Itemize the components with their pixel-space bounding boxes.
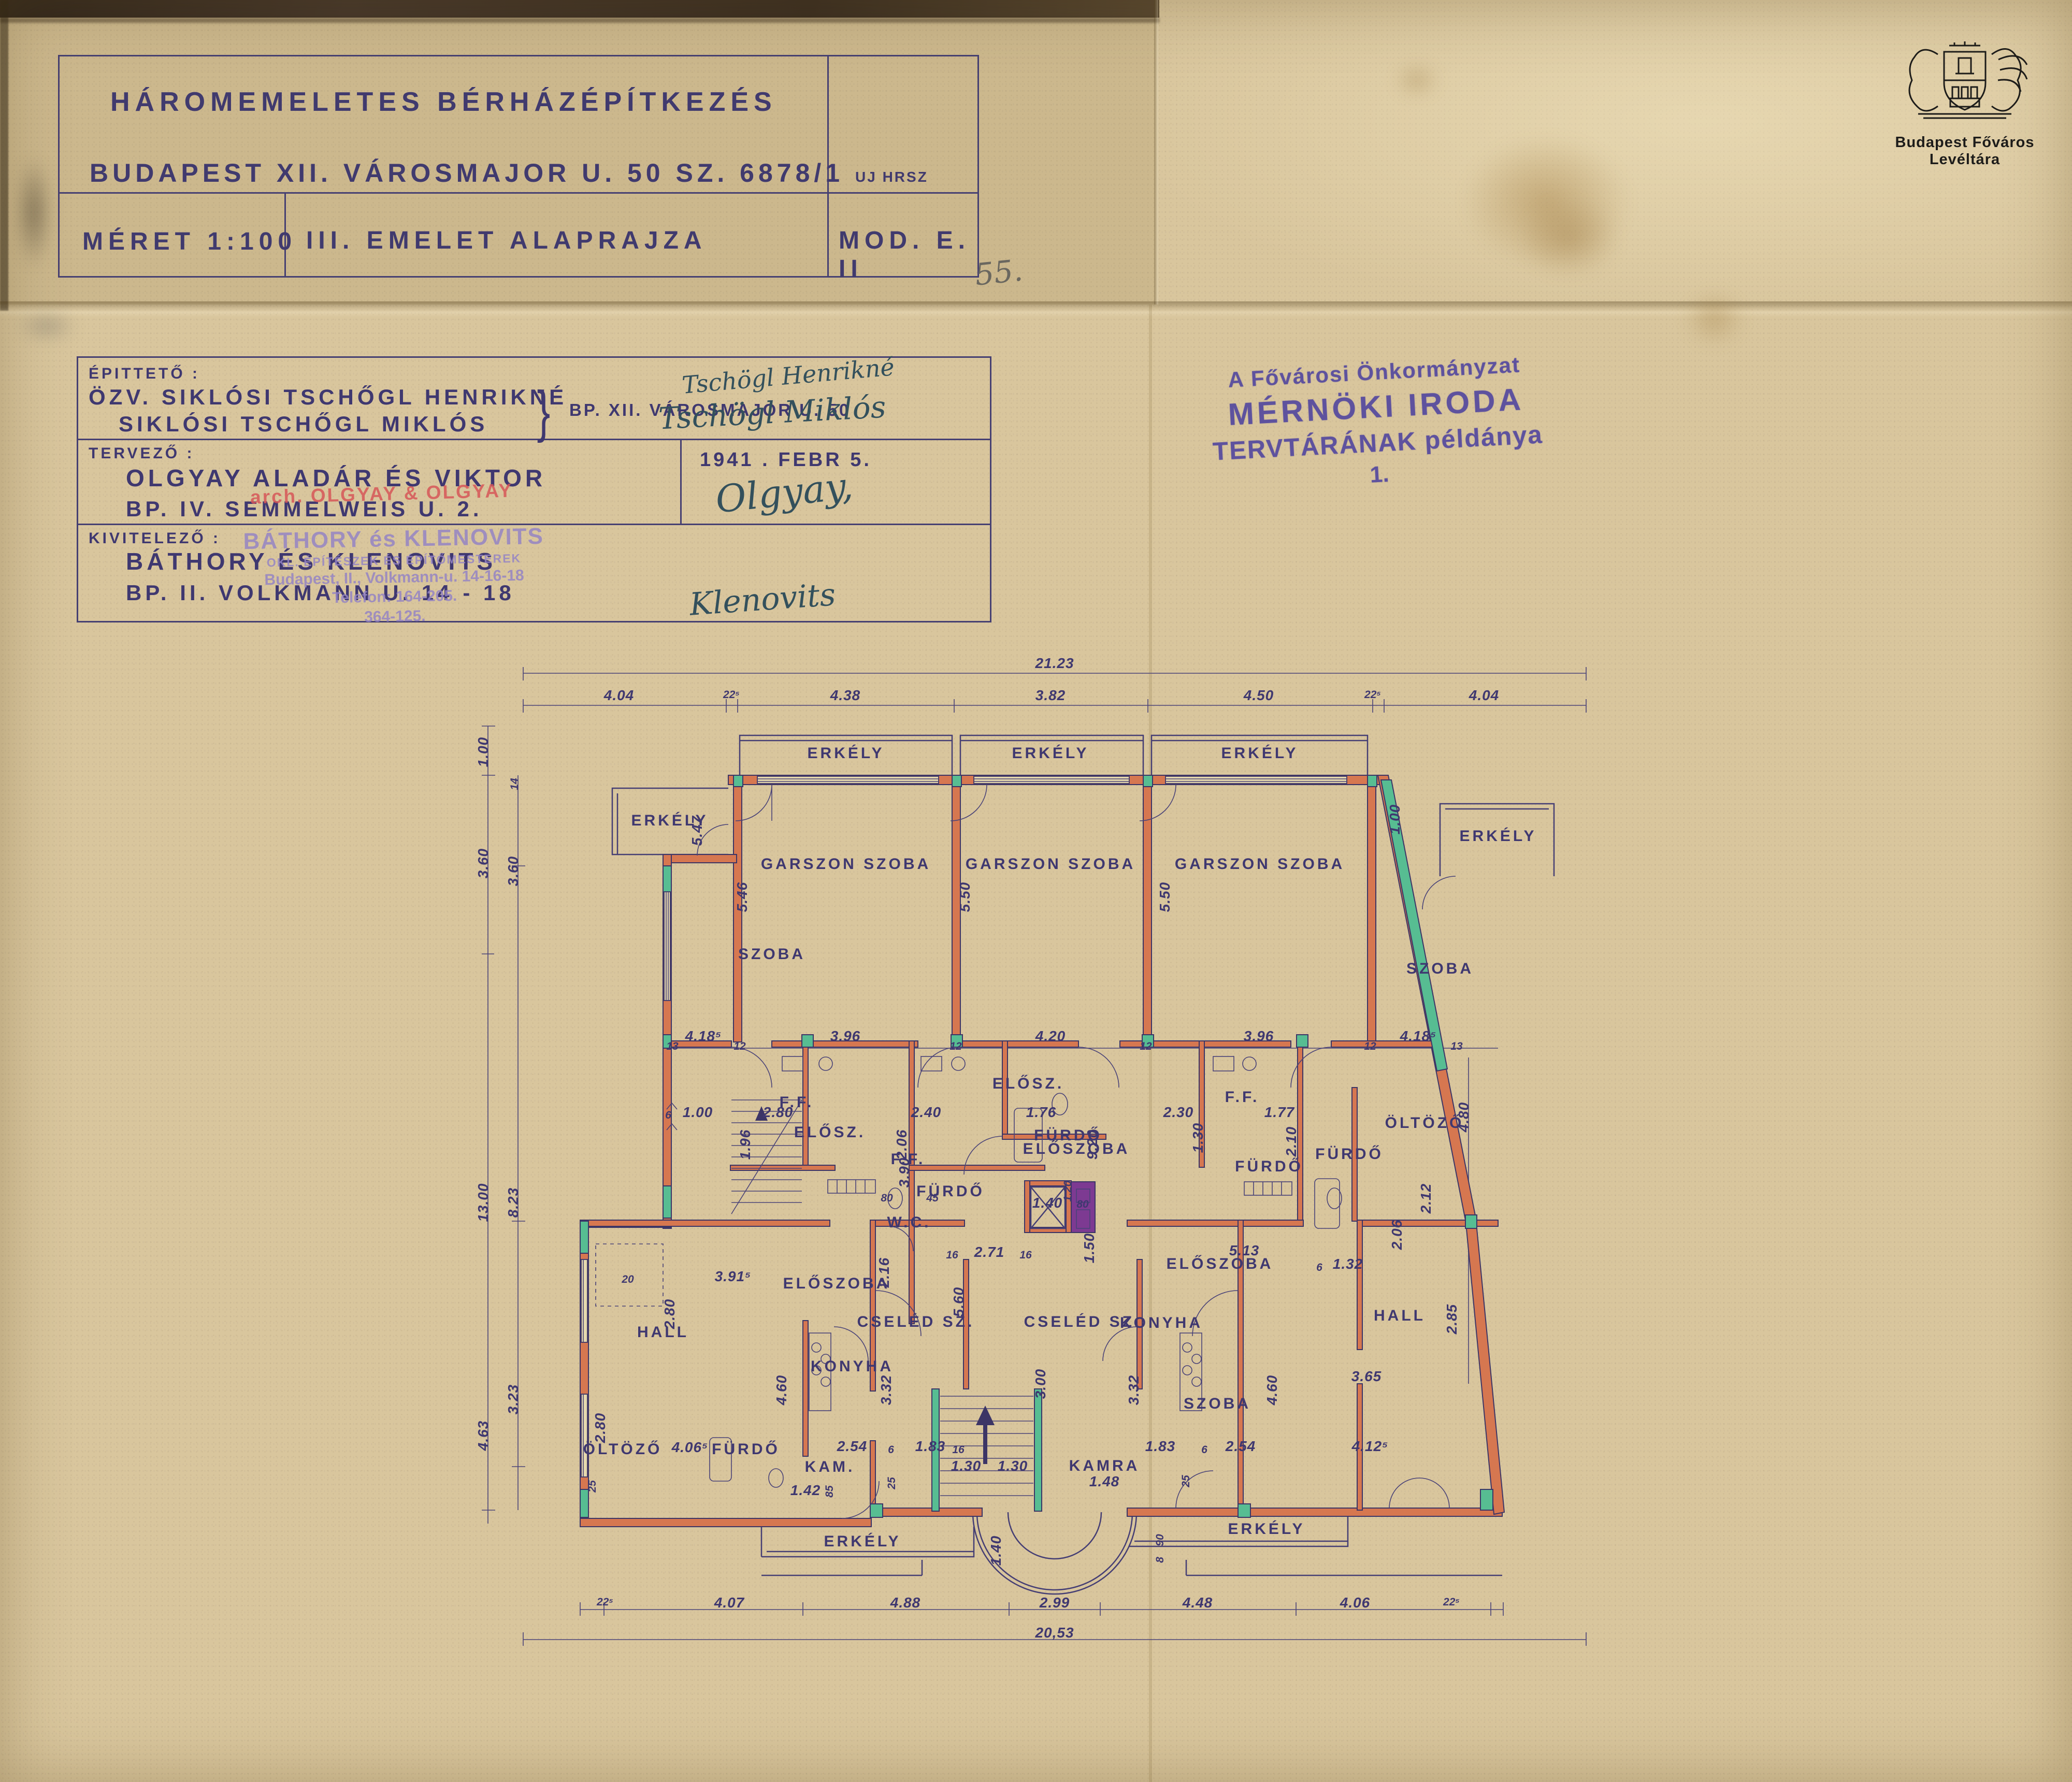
dimension-label: 4.06 xyxy=(1340,1595,1371,1611)
dimension-label: 1.30 xyxy=(998,1458,1028,1474)
dimension-label: 4.60 xyxy=(1264,1375,1280,1406)
dimension-label: 2.12 xyxy=(1418,1183,1434,1214)
archive-office-stamp: A Fővárosi Önkormányzat MÉRNÖKI IRODA TE… xyxy=(1167,347,1587,500)
dimension-label: 4.50 xyxy=(1243,687,1274,703)
pencil-number-note: 55. xyxy=(973,252,1025,292)
dimension-label: 1.00 xyxy=(1387,804,1403,835)
room-label: FÜRDŐ xyxy=(916,1182,985,1200)
dimension-label: 16 xyxy=(946,1249,958,1261)
dimension-label: 25 xyxy=(1180,1475,1192,1488)
paper-torn-top-shadow xyxy=(0,18,1159,23)
dimension-label: 4.63 xyxy=(475,1421,491,1452)
dimension-label: 20,53 xyxy=(1034,1625,1074,1641)
paper-left-edge xyxy=(0,0,8,311)
dimension-label: 2.80 xyxy=(592,1413,608,1444)
dimension-label: 80 xyxy=(1076,1198,1089,1210)
room-label: SZOBA xyxy=(1184,1395,1251,1412)
dimension-label: 8 xyxy=(1154,1557,1166,1563)
dimension-label: 2.54 xyxy=(1225,1438,1256,1454)
paper-fold-horizontal xyxy=(0,301,2072,317)
dimension-label: 3.23 xyxy=(505,1384,521,1415)
dimension-label: 1.76 xyxy=(1026,1104,1057,1120)
dimension-label: 6 xyxy=(1201,1444,1207,1456)
dimension-label: 5.60 xyxy=(951,1287,967,1317)
room-label: ERKÉLY xyxy=(1012,744,1089,762)
dimension-label: 90 xyxy=(1154,1534,1166,1546)
dimension-label: 1.32 xyxy=(1333,1256,1363,1272)
room-label: FÜRDŐ xyxy=(1315,1145,1384,1163)
project-address-text: BUDAPEST XII. VÁROSMAJOR U. 50 SZ. 6878/… xyxy=(90,158,844,187)
room-label: CSELÉD SZ. xyxy=(857,1313,975,1330)
dimension-label: 4.06⁵ xyxy=(671,1439,709,1455)
room-label: ELŐSZ. xyxy=(794,1123,866,1141)
dimension-label: 4.38 xyxy=(830,687,861,703)
dimension-label: 13 xyxy=(666,1040,679,1052)
dimension-label: 80 xyxy=(881,1192,893,1204)
mod-label: MOD. E. II xyxy=(839,226,977,283)
room-label: W.C. xyxy=(887,1214,931,1231)
parties-col-divider xyxy=(680,439,682,524)
room-label: ÖLTÖZŐ xyxy=(583,1440,663,1458)
room-label: KAMRA xyxy=(1069,1457,1140,1474)
room-label: ERKÉLY xyxy=(1221,744,1299,762)
dimension-label: 1.20 xyxy=(1062,1180,1074,1201)
room-label: ERKÉLY xyxy=(1228,1520,1305,1538)
room-label: GARSZON SZOBA xyxy=(761,856,931,873)
builder-name-2: SIKLÓSI TSCHŐGL MIKLÓS xyxy=(119,412,488,437)
room-label: HALL xyxy=(1374,1307,1426,1324)
dimension-label: 4.60 xyxy=(773,1375,789,1406)
room-label: GARSZON SZOBA xyxy=(966,856,1135,873)
signature-olgyay: Olgyay, xyxy=(713,463,855,521)
dimension-label: 3.82 xyxy=(1035,687,1066,703)
room-label: KONYHA xyxy=(811,1358,894,1375)
room-label: FÜRDŐ xyxy=(1235,1157,1303,1175)
dimension-label: 22⁵ xyxy=(723,689,740,701)
dimension-label: 2.30 xyxy=(1163,1104,1194,1120)
room-label: F.F. xyxy=(891,1151,926,1168)
dimension-label: 12 xyxy=(733,1040,746,1052)
parties-table: ÉPITTETŐ : ÖZV. SIKLÓSI TSCHŐGL HENRIKNÉ… xyxy=(77,356,991,622)
dimension-label: 22⁵ xyxy=(1443,1596,1460,1608)
dimension-label: 12 xyxy=(1364,1040,1376,1052)
dimension-label: 22⁵ xyxy=(1364,689,1381,701)
room-label: ERKÉLY xyxy=(1460,827,1537,845)
dimension-label: 4.18⁵ xyxy=(1400,1028,1437,1044)
dimension-label: 1.48 xyxy=(1089,1473,1120,1489)
dimension-label: 12 xyxy=(1140,1040,1152,1052)
dimension-label: 4.04 xyxy=(1469,687,1500,703)
room-label: KAM. xyxy=(805,1458,855,1475)
dimension-label: 1.96 xyxy=(737,1129,753,1160)
dimension-label: 1.50 xyxy=(1081,1233,1097,1264)
room-label: CSELÉD SZ. xyxy=(1024,1313,1142,1330)
dimension-label: 3.60 xyxy=(475,848,491,879)
room-label: SZOBA xyxy=(1406,960,1474,977)
dimension-label: 25 xyxy=(886,1477,898,1490)
dimension-label: 2.71 xyxy=(974,1244,1005,1260)
room-label: ERKÉLY xyxy=(631,812,709,829)
designer-heading: TERVEZŐ : xyxy=(89,445,194,462)
room-label: ELŐSZOBA xyxy=(1023,1140,1130,1157)
scale-label: MÉRET 1:100 xyxy=(82,227,297,256)
title-block: HÁROMEMELETES BÉRHÁZÉPÍTKEZÉS BUDAPEST X… xyxy=(58,55,979,278)
room-labels: ERKÉLYERKÉLYERKÉLYERKÉLYERKÉLYGARSZON SZ… xyxy=(583,744,1537,1550)
paper-stain xyxy=(1518,197,1621,280)
dimension-label: 1.40 xyxy=(1032,1195,1063,1211)
dimension-label: 4.20 xyxy=(1035,1028,1066,1044)
dimension-label: 20 xyxy=(621,1273,634,1285)
dimension-label: 16 xyxy=(1019,1249,1032,1261)
dimension-label: 1.30 xyxy=(1190,1123,1206,1153)
dimension-label: 2.99 xyxy=(1039,1595,1070,1611)
title-block-divider xyxy=(60,192,977,194)
dimension-label: 3.96 xyxy=(1244,1028,1274,1044)
dimension-label: 1.30 xyxy=(951,1458,982,1474)
dimension-label: 25 xyxy=(586,1480,598,1493)
archive-logo: Budapest Főváros Levéltára xyxy=(1874,41,2055,168)
dimension-label: 85 xyxy=(824,1485,836,1498)
dimension-label: 14 xyxy=(509,778,521,790)
contractor-heading: KIVITELEZŐ : xyxy=(89,530,221,547)
dimension-label: 12 xyxy=(949,1040,962,1052)
dimension-label: 5.46 xyxy=(734,882,750,912)
room-label: ELŐSZ. xyxy=(992,1075,1064,1092)
dimension-label: 5.50 xyxy=(957,882,973,912)
paper-smudge xyxy=(16,155,52,269)
dimension-label: 3.32 xyxy=(1126,1375,1142,1406)
room-label: ELŐSZOBA xyxy=(783,1274,890,1292)
room-label: ERKÉLY xyxy=(808,744,885,762)
coat-of-arms-icon xyxy=(1887,41,2042,129)
dimension-label: 1.40 xyxy=(988,1535,1004,1566)
dimension-label: 2.40 xyxy=(911,1104,942,1120)
dimension-label: 2.54 xyxy=(837,1438,868,1454)
builder-heading: ÉPITTETŐ : xyxy=(89,365,200,383)
dimension-label: 2.06 xyxy=(1389,1220,1405,1251)
room-label: F.F. xyxy=(1225,1089,1260,1106)
dimension-label: 4.07 xyxy=(714,1595,745,1611)
room-label: ELŐSZOBA xyxy=(1167,1255,1274,1272)
dimension-label: 5.50 xyxy=(1157,882,1173,912)
dimension-label: 6 xyxy=(665,1109,671,1121)
dimension-label: 16 xyxy=(952,1444,965,1456)
dimension-label: 4.88 xyxy=(890,1595,921,1611)
dimension-label: 8.23 xyxy=(505,1187,521,1218)
archive-logo-caption: Budapest Főváros Levéltára xyxy=(1874,134,2055,168)
room-label: GARSZON SZOBA xyxy=(1175,856,1345,873)
room-label: ERKÉLY xyxy=(824,1532,901,1550)
bathory-stamp: BÁTHORY és KLENOVITS OKL. ÉPÍTÉSZEK ÉS É… xyxy=(212,521,576,629)
drawing-title: III. EMELET ALAPRAJZA xyxy=(306,226,707,255)
dimension-label: 1.77 xyxy=(1264,1104,1295,1120)
dimension-label: 1.42 xyxy=(790,1482,821,1498)
dimension-label: 4.18⁵ xyxy=(685,1028,722,1044)
dimension-label: 4.04 xyxy=(603,687,635,703)
paper-fold-vertical-top xyxy=(1154,0,1158,305)
room-label: F.F. xyxy=(780,1094,814,1111)
project-address: BUDAPEST XII. VÁROSMAJOR U. 50 SZ. 6878/… xyxy=(90,158,928,188)
signature-klenovits: Klenovits xyxy=(688,576,837,623)
paper-smudge xyxy=(16,311,78,342)
dimension-label: 6 xyxy=(888,1444,894,1456)
parties-row-divider xyxy=(78,439,990,440)
dimension-label: 6 xyxy=(1316,1262,1322,1273)
scanned-blueprint-page: HÁROMEMELETES BÉRHÁZÉPÍTKEZÉS BUDAPEST X… xyxy=(0,0,2072,1782)
dimension-label: 4.12⁵ xyxy=(1351,1438,1389,1454)
dimension-label: 1.83 xyxy=(915,1438,946,1454)
dimension-label: 13.00 xyxy=(475,1183,491,1222)
dimension-label: 21.23 xyxy=(1034,655,1074,671)
paper-stain xyxy=(1683,290,1746,347)
dimension-label: 3.91⁵ xyxy=(715,1268,752,1284)
room-label: ÖLTÖZŐ xyxy=(1385,1114,1464,1132)
dimension-label: 2.85 xyxy=(1444,1304,1460,1335)
parcel-suffix: UJ HRSZ xyxy=(855,169,928,185)
dimension-label: 22⁵ xyxy=(596,1596,613,1608)
dimension-label: 1.00 xyxy=(683,1104,713,1120)
paper-torn-top-edge xyxy=(0,0,1159,18)
dimension-label: 13 xyxy=(1450,1040,1463,1052)
floor-plan: 21.234.0422⁵4.383.824.5022⁵4.041.003.601… xyxy=(440,648,1683,1767)
dimension-label: 4.48 xyxy=(1182,1595,1213,1611)
project-title: HÁROMEMELETES BÉRHÁZÉPÍTKEZÉS xyxy=(110,86,777,118)
dimension-label: 1.83 xyxy=(1145,1438,1176,1454)
dimension-label: 2.10 xyxy=(1283,1126,1299,1157)
brace: } xyxy=(537,379,551,444)
room-label: FÜRDŐ xyxy=(712,1440,780,1458)
builder-name-1: ÖZV. SIKLÓSI TSCHŐGL HENRIKNÉ xyxy=(89,385,567,410)
dimension-label: 3.00 xyxy=(1032,1369,1048,1399)
paper-stain xyxy=(1393,62,1440,98)
dimension-label: 1.00 xyxy=(475,737,491,767)
room-label: SZOBA xyxy=(738,946,805,963)
dimension-label: 3.32 xyxy=(878,1375,894,1406)
room-label: HALL xyxy=(637,1324,689,1341)
dimension-label: 3.65 xyxy=(1351,1368,1382,1384)
dimension-label: 3.60 xyxy=(505,856,521,887)
dimension-label: 3.96 xyxy=(830,1028,861,1044)
